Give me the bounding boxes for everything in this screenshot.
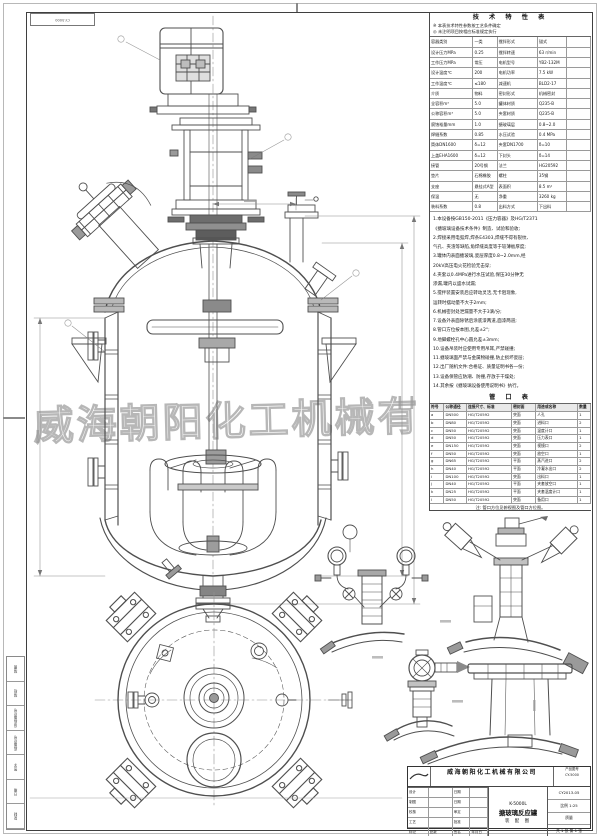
table-cell: 温度计口 [536, 428, 578, 435]
agitator-impeller [165, 450, 261, 473]
table-cell: DN50 [444, 428, 467, 435]
table-cell: 罐体材质 [498, 99, 538, 108]
table-cell: 0.8~2.0 [538, 120, 567, 129]
table-cell: 夹套DN1700 [498, 140, 538, 149]
table-cell: HG20592 [538, 161, 567, 170]
table-cell [567, 120, 591, 129]
strip-cell: 底图总号 [7, 731, 24, 756]
table-cell: 连接尺寸、标准 [467, 404, 512, 411]
table-cell: 3260 kg [538, 192, 567, 201]
company-logo-icon [408, 767, 431, 786]
text-line: 10.设备吊装时应使用专用吊耳,严禁碰撞; [433, 345, 589, 354]
table-cell: 设计 [408, 788, 429, 797]
table-cell [567, 48, 591, 57]
table-cell: 标记 [408, 828, 429, 836]
binding-edge-strip: 描图描校旧底图总号底图总号签字日期复制 [6, 656, 25, 830]
plan-upper-left-nozzle [150, 645, 173, 674]
table-cell: 垫片 [430, 171, 473, 180]
table-cell: 搅拌转速 [498, 48, 538, 57]
strip-cell-label: 描校 [13, 689, 18, 697]
table-cell: HG/T20592 [467, 435, 512, 442]
table-cell: 减速机 [498, 79, 538, 88]
text-line: 14.其余按《搪玻璃设备使用说明书》执行。 [433, 382, 589, 391]
company-name: 威海朝阳化工机械有限公司 [431, 767, 553, 786]
table-row: iDN100HG/T20592突面出料口1 [430, 474, 591, 482]
text-line: 11.搪玻璃面严禁与金属物碰撞,防止损坏瓷层; [433, 354, 589, 363]
table-cell: 设计温度℃ [430, 68, 473, 77]
table-cell: 年月日 [470, 828, 488, 836]
table-cell: 7.5 kW [538, 68, 567, 77]
table-cell: c [430, 428, 444, 435]
text-line: 9.地脚螺栓孔中心圆允差±3mm; [433, 336, 589, 345]
table-cell: 日期 [453, 798, 471, 807]
table-cell: 夹套放空口 [536, 481, 578, 488]
table-cell: 突面 [512, 497, 536, 504]
drawing-number: CY2013-05 [548, 787, 590, 800]
jacket-nozzle-upper-left [88, 332, 105, 360]
table-cell: 冷凝水出口 [536, 466, 578, 473]
table-cell: 机械密封 [538, 89, 567, 98]
table-cell [567, 140, 591, 149]
table-cell [567, 99, 591, 108]
table-cell: 焊缝系数 [430, 130, 473, 139]
table-cell: 人孔 [536, 412, 578, 419]
strip-cell: 签字 [7, 755, 24, 780]
strip-cell-label: 描图 [13, 665, 18, 673]
table-cell: 介质 [430, 89, 473, 98]
table-cell: 蒸汽进口 [536, 458, 578, 465]
table-cell: 2 [578, 458, 591, 465]
table-cell: 接管 [430, 161, 473, 170]
table-cell: 1 [578, 497, 591, 504]
text-line: 20kV高压电火花检验无击穿; [433, 262, 589, 271]
table-cell: 设计压力MPa [430, 48, 473, 57]
nozzle-table-note: 注: 管口方位见俯视图及管口方位图。 [430, 504, 591, 512]
jacket-nozzle-lower-right [331, 452, 348, 480]
table-row: gDN65HG/T20592平面蒸汽进口2 [430, 458, 591, 466]
table-cell: 符号 [430, 404, 444, 411]
table-row: fDN50HG/T20592突面放空口1 [430, 451, 591, 459]
table-cell: 突面 [512, 435, 536, 442]
table-cell: 1 [578, 489, 591, 496]
table-cell: 螺柱 [498, 171, 538, 180]
table-cell: 数量 [578, 404, 591, 411]
table-cell: l [430, 497, 444, 504]
table-cell: HG/T20592 [467, 489, 512, 496]
table-cell: 1 [578, 474, 591, 481]
strip-cell: 日期 [7, 780, 24, 805]
table-row: 工作压力MPa常压电机型号YB2-132M [430, 58, 591, 68]
table-cell: DN150 [444, 443, 467, 450]
manway-nozzle [52, 157, 177, 284]
detail-twin-instrument-nozzle [439, 516, 588, 674]
table-cell: h [430, 466, 444, 473]
table-cell [470, 818, 488, 827]
table-row: 接管20号钢法兰HG20592 [430, 161, 591, 171]
table-cell [429, 808, 453, 817]
table-row: 腐蚀裕量mm1.0搪玻璃层0.8~2.0 [430, 120, 591, 130]
table-cell [429, 818, 453, 827]
table-cell: Q235-B [538, 109, 567, 118]
table-cell: DN50 [444, 451, 467, 458]
product-number-value: CY-5000 [554, 773, 590, 779]
table-cell: DN65 [444, 458, 467, 465]
table-cell: 日期 [453, 788, 471, 797]
table-cell: 电机功率 [498, 68, 538, 77]
strip-cell-label: 签字 [13, 763, 18, 771]
nozzle-table: 符号公称通径连接尺寸、标准密封面用途或名称数量aDN500HG/T20592突面… [430, 403, 591, 504]
table-cell [567, 109, 591, 118]
table-cell: f [430, 451, 444, 458]
table-cell: 8.5 m² [538, 182, 567, 191]
table-row: jDN40HG/T20592平面夹套放空口1 [430, 481, 591, 489]
text-line: 12.出厂随机文件:合格证、质量证明书各一份; [433, 363, 589, 372]
company-watermark: 威海朝阳化工机械有 [33, 394, 421, 450]
table-cell: a [430, 412, 444, 419]
table-cell: 2 [578, 420, 591, 427]
table-cell: DN40 [444, 466, 467, 473]
text-line: 7.设备外表面除锈后涂底漆两道,面漆两道; [433, 317, 589, 326]
table-cell: DN100 [444, 474, 467, 481]
table-cell: 筒体DN1600 [430, 140, 473, 149]
support-lug-right [322, 338, 356, 382]
table-cell: 出料口 [536, 474, 578, 481]
text-line: 运转时摆动量不大于2mm; [433, 299, 589, 308]
table-cell: 夹套材质 [498, 109, 538, 118]
text-line: 1.本设备按GB150-2011《压力容器》及HG/T2371 [433, 215, 589, 224]
table-row: hDN40HG/T20592平面冷凝水出口2 [430, 466, 591, 474]
table-cell: HG/T20592 [467, 443, 512, 450]
technical-notes: 1.本设备按GB150-2011《压力容器》及HG/T2371《搪玻璃设备技术条… [430, 212, 591, 393]
strip-cell: 描图 [7, 657, 24, 682]
table-cell: 0.4 MPa [538, 130, 567, 139]
signature-grid: 设计日期制图日期校核审定工艺批准标记处数签名年月日 [408, 787, 489, 836]
table-cell: 制图 [408, 798, 429, 807]
table-cell: DN50 [444, 497, 467, 504]
strip-cell-label: 日期 [13, 788, 18, 796]
table-cell: 公称容积m³ [430, 109, 473, 118]
table-cell [567, 192, 591, 201]
table-row: 容器类别一类搅拌形式锚式 [430, 37, 591, 47]
table-cell: 下出料 [538, 202, 567, 211]
table-cell: 支座 [430, 182, 473, 191]
table-cell: 1 [578, 428, 591, 435]
table-cell: 工作压力MPa [430, 58, 473, 67]
table-cell [567, 68, 591, 77]
text-line: 13.设备保管应防潮、防撞,存放于干燥处; [433, 373, 589, 382]
product-number-cell: 产品图号 CY-5000 [553, 767, 590, 786]
table-cell: δ=10 [538, 140, 567, 149]
strip-cell-label: 旧底图总号 [13, 708, 18, 728]
table-cell: DN500 [444, 412, 467, 419]
plan-upper-right-nozzle [251, 643, 277, 668]
table-cell: b [430, 420, 444, 427]
table-cell: HG/T20592 [467, 481, 512, 488]
table-cell: 校核 [408, 808, 429, 817]
table-cell: δ=12 [473, 140, 497, 149]
table-cell [470, 788, 488, 797]
text-line: 4.夹套以0.4MPa进行水压试验,保压30分钟无 [433, 271, 589, 280]
table-cell [429, 788, 453, 797]
detail-flanged-nozzle [420, 664, 578, 764]
table-cell: 突面 [512, 474, 536, 481]
table-cell: i [430, 474, 444, 481]
table-cell: 35钢 [538, 171, 567, 180]
text-line: 渗漏,罐内以盛水试漏; [433, 280, 589, 289]
table-cell: 1 [578, 412, 591, 419]
table-cell: 密封形式 [498, 89, 538, 98]
table-cell: 平面 [512, 466, 536, 473]
table-cell: 锚式 [538, 37, 567, 46]
title-block: 威海朝阳化工机械有限公司 产品图号 CY-5000 设计日期制图日期校核审定工艺… [407, 766, 591, 829]
table-cell [429, 798, 453, 807]
table-cell: 突面 [512, 428, 536, 435]
table-cell: 1 [578, 481, 591, 488]
table-row: dDN50HG/T20592突面压力表口1 [430, 435, 591, 443]
table-row: bDN80HG/T20592突面进料口2 [430, 420, 591, 428]
table-cell: j [430, 481, 444, 488]
drawing-scale: 比例 1:25 [548, 800, 590, 813]
table-cell: 工艺 [408, 818, 429, 827]
table-row: aDN500HG/T20592突面人孔1 [430, 412, 591, 420]
table-cell: 视镜口 [536, 443, 578, 450]
table-row: 保温无净重3260 kg [430, 192, 591, 202]
table-cell: 保温 [430, 192, 473, 201]
table-row: 工作温度℃≤180减速机BLD2-17 [430, 79, 591, 89]
table-cell: 1 [578, 451, 591, 458]
table-cell: 放空口 [536, 451, 578, 458]
table-row: 上盖EHA1600δ=12下封头δ=14 [430, 151, 591, 161]
table-row: 设计压力MPa0.25搅拌转速63 r/min [430, 48, 591, 58]
table-cell: 用途或名称 [536, 404, 578, 411]
table-row: cDN50HG/T20592突面温度计口1 [430, 428, 591, 436]
table-cell: δ=12 [473, 151, 497, 160]
table-cell: 0.85 [473, 130, 497, 139]
table-row: kDN25HG/T20592平面夹套温度计口1 [430, 489, 591, 497]
svg-text:威海朝阳化工机械有: 威海朝阳化工机械有 [33, 394, 421, 450]
table-cell: 200 [473, 68, 497, 77]
table-cell: HG/T20592 [467, 428, 512, 435]
table-cell: 审定 [453, 808, 471, 817]
table-cell: 2 [578, 443, 591, 450]
table-row: 支座悬挂式A型表面积8.5 m² [430, 182, 591, 192]
table-cell: HG/T20592 [467, 474, 512, 481]
table-row: 符号公称通径连接尺寸、标准密封面用途或名称数量 [430, 404, 591, 412]
text-line: 《搪玻璃设备技术条件》制造、试验和验收; [433, 225, 589, 234]
table-cell: 63 r/min [538, 48, 567, 57]
table-cell [470, 798, 488, 807]
table-cell [567, 79, 591, 88]
title-block-main: 设计日期制图日期校核审定工艺批准标记处数签名年月日 K-5000L 搪玻璃反应罐… [408, 787, 590, 836]
table-cell: 法兰 [498, 161, 538, 170]
right-data-column: 技 术 特 性 表 ※ 本表技术特性参数按工艺条件确定◎ 未注明项目按相应标准规… [429, 13, 591, 511]
text-line: 3.罐体内表面搪玻璃,瓷层厚度0.8~2.0mm,经 [433, 252, 589, 261]
table-cell: 平面 [512, 481, 536, 488]
table-cell: 电机型号 [498, 58, 538, 67]
table-cell [567, 130, 591, 139]
strip-cell: 描校 [7, 682, 24, 707]
table-cell [567, 151, 591, 160]
table-row: lDN50HG/T20592突面备用口1 [430, 497, 591, 505]
table-cell: 出料方式 [498, 202, 538, 211]
table-cell: 批准 [453, 818, 471, 827]
table-cell: 下封头 [498, 151, 538, 160]
drawing-subtitle: 装 配 图 [489, 818, 547, 825]
text-line: 气孔、夹渣等缺陷,角焊缝高度等于较薄板厚度; [433, 243, 589, 252]
table-cell: 进料口 [536, 420, 578, 427]
jacket-nozzle-lower-left [88, 458, 105, 486]
text-line: 6.机械密封处泄漏量不大于3滴/分; [433, 308, 589, 317]
table-cell: 表面积 [498, 182, 538, 191]
table-cell: 搅拌形式 [498, 37, 538, 46]
equipment-model: K-5000L [489, 801, 547, 808]
table-row: 筒体DN1600δ=12夹套DN1700δ=10 [430, 140, 591, 150]
table-cell: HG/T20592 [467, 497, 512, 504]
table-cell: 5.0 [473, 99, 497, 108]
nozzle-table-title: 管 口 表 [430, 393, 591, 403]
table-row: 制图日期 [408, 798, 488, 808]
table-cell: 备用口 [536, 497, 578, 504]
table-row: 介质物料密封形式机械密封 [430, 89, 591, 99]
table-cell: DN80 [444, 420, 467, 427]
text-line: 2.焊接采用电弧焊,焊条E4303,焊缝不得有裂纹、 [433, 234, 589, 243]
table-cell [567, 161, 591, 170]
table-row: 设计日期 [408, 788, 488, 798]
drawing-mass: 质量 [548, 813, 590, 826]
table-cell: HG/T20592 [467, 412, 512, 419]
table-cell: YB2-132M [538, 58, 567, 67]
table-cell: e [430, 443, 444, 450]
table-cell: δ=14 [538, 151, 567, 160]
table-cell: g [430, 458, 444, 465]
detail-gauge-manifold [315, 525, 428, 654]
table-row: 工艺批准 [408, 818, 488, 828]
table-cell: 夹套温度计口 [536, 489, 578, 496]
motor [150, 28, 256, 114]
table-cell: 石棉橡胶 [473, 171, 497, 180]
spec-table: 容器类别一类搅拌形式锚式设计压力MPa0.25搅拌转速63 r/min工作压力M… [430, 36, 591, 212]
text-line: 5.搅拌装置安装后应转动灵活,无卡阻现象, [433, 289, 589, 298]
table-cell: 一类 [473, 37, 497, 46]
table-cell: HG/T20592 [467, 451, 512, 458]
table-cell: 压力表口 [536, 435, 578, 442]
table-cell: DN40 [444, 481, 467, 488]
table-cell: DN25 [444, 489, 467, 496]
table-cell: 0.25 [473, 48, 497, 57]
table-cell: HG/T20592 [467, 458, 512, 465]
table-cell [567, 182, 591, 191]
table-row: 装料系数0.8出料方式下出料 [430, 202, 591, 212]
table-cell: 上盖EHA1600 [430, 151, 473, 160]
drawing-sheet: CY-5000 威海朝阳化工机械有 [0, 0, 600, 836]
table-cell: 突面 [512, 412, 536, 419]
table-row: 标记处数签名年月日 [408, 828, 488, 836]
table-cell: 平面 [512, 489, 536, 496]
table-cell: 密封面 [512, 404, 536, 411]
table-cell: 1 [578, 435, 591, 442]
table-cell: 悬挂式A型 [473, 182, 497, 191]
table-row: 全容积m³5.0罐体材质Q235-B [430, 99, 591, 109]
plan-view [30, 587, 402, 812]
table-cell: 20号钢 [473, 161, 497, 170]
table-row: 公称容积m³5.0夹套材质Q235-B [430, 109, 591, 119]
table-cell: k [430, 489, 444, 496]
text-line: 8.管口方位按本图,允差±2°; [433, 326, 589, 335]
table-row: 焊缝系数0.85水压试验0.4 MPa [430, 130, 591, 140]
table-cell [470, 808, 488, 817]
strip-cell: 复制 [7, 804, 24, 829]
strip-cell-label: 复制 [13, 812, 18, 820]
table-cell [567, 89, 591, 98]
table-cell: 突面 [512, 443, 536, 450]
table-cell: 工作温度℃ [430, 79, 473, 88]
table-row: 设计温度℃200电机功率7.5 kW [430, 68, 591, 78]
table-cell: 物料 [473, 89, 497, 98]
spec-table-title: 技 术 特 性 表 [430, 13, 591, 23]
table-row: eDN150HG/T20592突面视镜口2 [430, 443, 591, 451]
table-cell: d [430, 435, 444, 442]
table-cell [567, 58, 591, 67]
table-cell: HG/T20592 [467, 420, 512, 427]
table-cell: 装料系数 [430, 202, 473, 211]
table-cell: 公称通径 [444, 404, 467, 411]
table-row: 校核审定 [408, 808, 488, 818]
title-block-company-band: 威海朝阳化工机械有限公司 产品图号 CY-5000 [408, 767, 590, 787]
table-cell: 净重 [498, 192, 538, 201]
table-cell: HG/T20592 [467, 466, 512, 473]
table-cell: 搪玻璃层 [498, 120, 538, 129]
table-cell: 水压试验 [498, 130, 538, 139]
table-cell: 签名 [453, 828, 471, 836]
strip-cell-label: 底图总号 [13, 735, 18, 751]
table-cell: 容器类别 [430, 37, 473, 46]
detail-side-valve [384, 650, 470, 741]
table-cell: 腐蚀裕量mm [430, 120, 473, 129]
strip-cell: 旧底图总号 [7, 706, 24, 731]
sheet-count: 共 1 张 第 1 张 [548, 825, 590, 836]
right-shoulder-nozzle [300, 262, 336, 299]
table-cell: 2 [578, 466, 591, 473]
internal-beam [147, 320, 283, 334]
table-cell: 平面 [512, 458, 536, 465]
table-cell [567, 37, 591, 46]
table-cell: 无 [473, 192, 497, 201]
table-cell: 0.8 [473, 202, 497, 211]
drawing-number-cell: CY2013-05 比例 1:25 质量 共 1 张 第 1 张 [548, 787, 590, 836]
table-cell: 1.0 [473, 120, 497, 129]
drawing-title: 搪玻璃反应罐 [489, 808, 547, 818]
drawing-title-cell: K-5000L 搪玻璃反应罐 装 配 图 [489, 787, 548, 836]
table-cell [567, 202, 591, 211]
table-cell: DN50 [444, 435, 467, 442]
table-cell: 全容积m³ [430, 99, 473, 108]
table-cell: 常压 [473, 58, 497, 67]
table-row: 垫片石棉橡胶螺柱35钢 [430, 171, 591, 181]
text-line: ◎ 未注明项目按相应标准规定执行 [433, 29, 589, 35]
table-cell: 处数 [429, 828, 453, 836]
table-cell: 突面 [512, 420, 536, 427]
table-cell: BLD2-17 [538, 79, 567, 88]
spec-table-prenotes: ※ 本表技术特性参数按工艺条件确定◎ 未注明项目按相应标准规定执行 [430, 23, 591, 36]
table-cell [567, 171, 591, 180]
top-right-nozzle [285, 192, 318, 262]
table-cell: Q235-B [538, 99, 567, 108]
table-cell: ≤180 [473, 79, 497, 88]
table-cell: 5.0 [473, 109, 497, 118]
table-cell: 突面 [512, 451, 536, 458]
